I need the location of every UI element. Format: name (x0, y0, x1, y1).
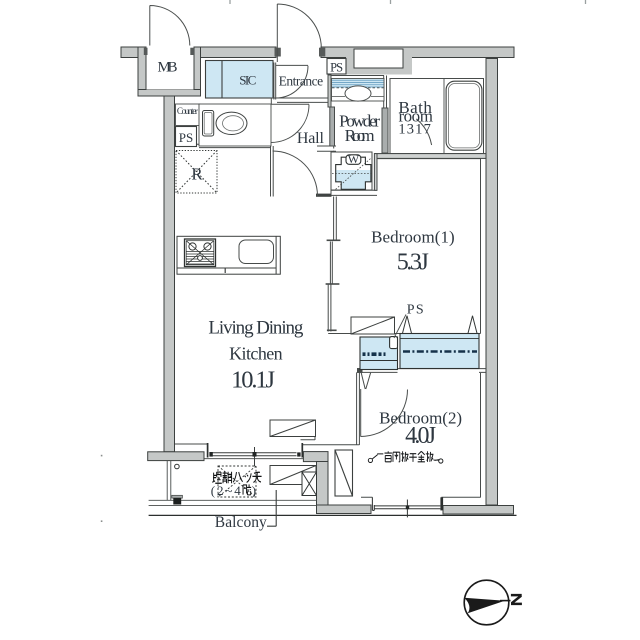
svg-text:MB: MB (158, 59, 178, 75)
svg-text:Balcony: Balcony (215, 514, 267, 531)
svg-text:Hall: Hall (297, 130, 325, 147)
svg-text:SIC: SIC (239, 73, 256, 88)
svg-text:Bedroom(1): Bedroom(1) (371, 227, 455, 246)
svg-text:Living Dining: Living Dining (208, 318, 304, 339)
svg-text:5.3J: 5.3J (397, 250, 429, 276)
svg-text:W: W (348, 152, 360, 166)
svg-text:Room: Room (345, 126, 375, 145)
svg-text:Kitchen: Kitchen (229, 344, 283, 364)
svg-text:): ) (252, 483, 256, 498)
svg-text:10.1J: 10.1J (231, 367, 275, 394)
svg-text:PS: PS (407, 303, 424, 318)
svg-text:PS: PS (179, 130, 194, 145)
svg-text:1317: 1317 (398, 121, 431, 137)
svg-text:R: R (191, 164, 203, 183)
svg-text:PS: PS (330, 60, 343, 74)
svg-text:4.0J: 4.0J (405, 423, 436, 449)
svg-text:Entrance: Entrance (279, 74, 324, 89)
svg-text:Counter: Counter (177, 106, 198, 116)
